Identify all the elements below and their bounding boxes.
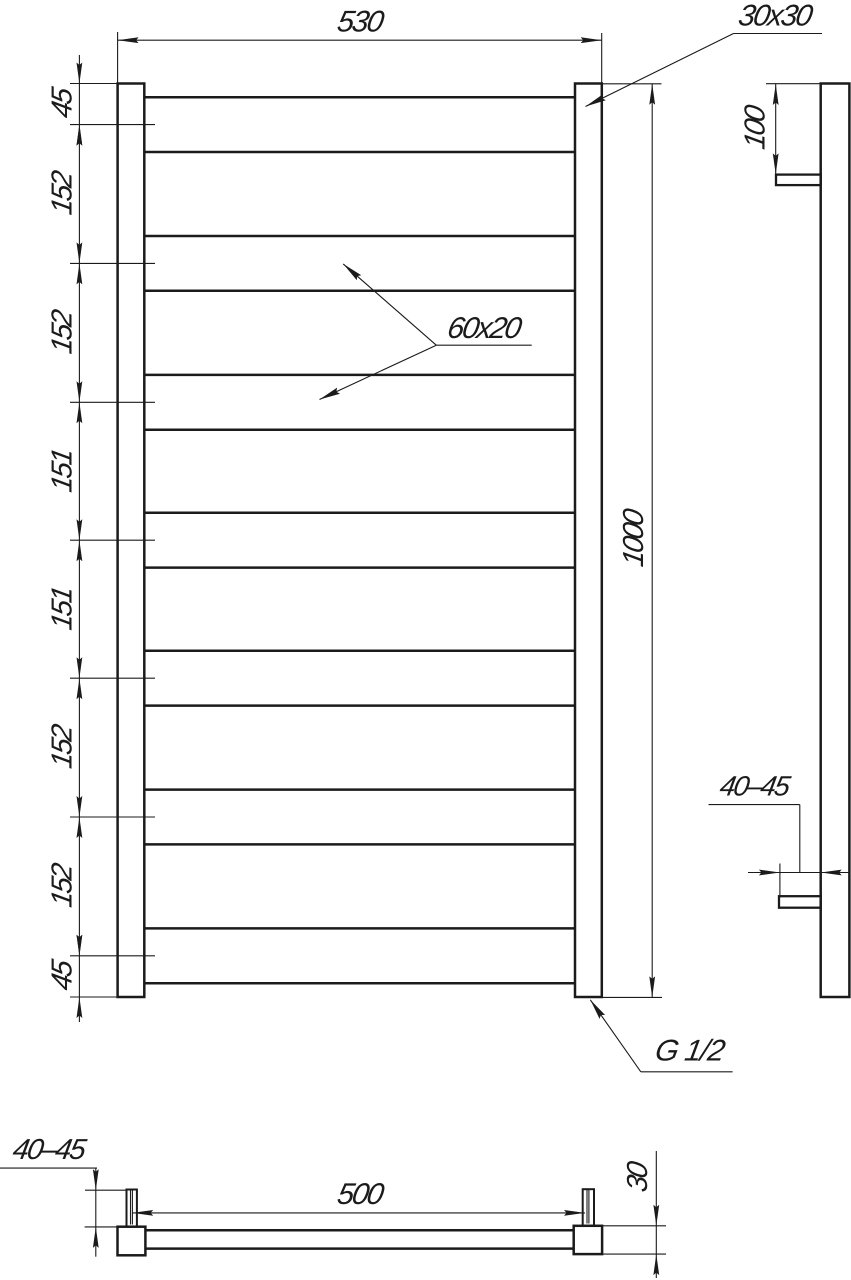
svg-text:151: 151 — [47, 586, 79, 633]
svg-text:500: 500 — [335, 1178, 387, 1211]
svg-text:30x30: 30x30 — [736, 0, 816, 32]
svg-text:100: 100 — [740, 103, 772, 152]
svg-text:530: 530 — [335, 6, 387, 39]
svg-text:40–45: 40–45 — [10, 1134, 89, 1166]
svg-text:60x20: 60x20 — [445, 312, 525, 345]
svg-text:152: 152 — [47, 861, 79, 910]
svg-text:152: 152 — [47, 168, 79, 217]
svg-text:152: 152 — [47, 722, 79, 771]
svg-text:40–45: 40–45 — [718, 770, 794, 802]
svg-text:152: 152 — [47, 307, 79, 356]
svg-text:1000: 1000 — [618, 507, 650, 569]
svg-text:G 1/2: G 1/2 — [653, 1035, 728, 1068]
svg-text:151: 151 — [47, 448, 79, 495]
